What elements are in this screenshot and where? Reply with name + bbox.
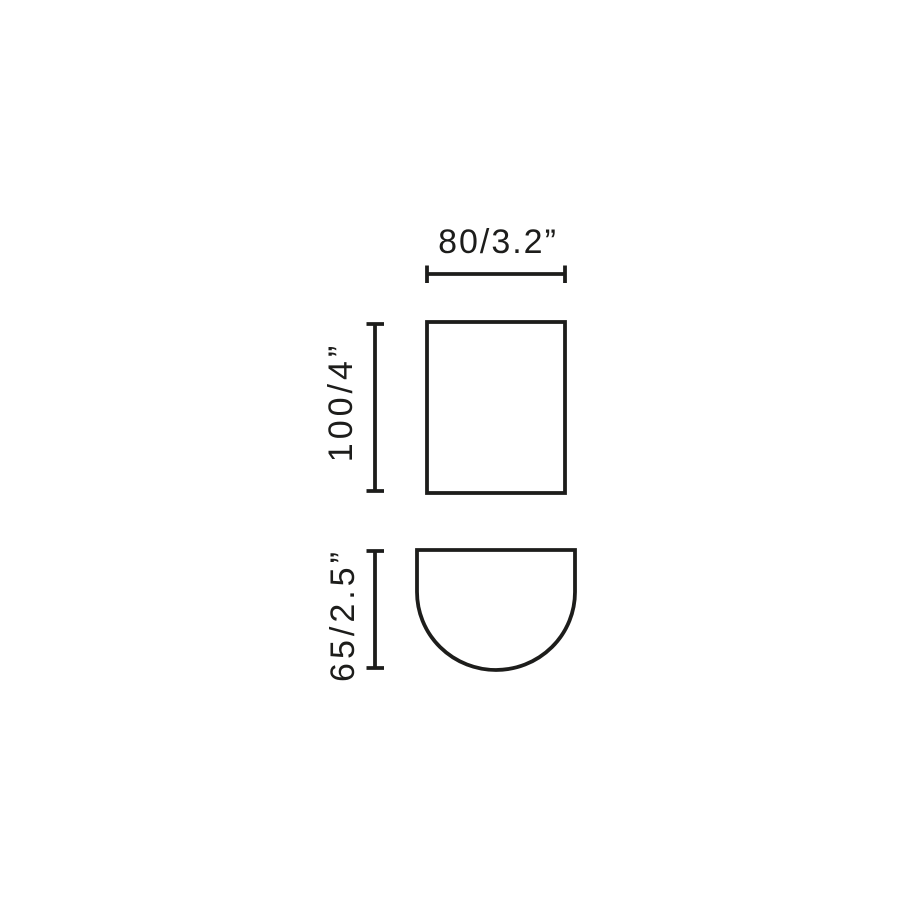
drawing-canvas: 80/3.2” 100/4” 65/2.5” xyxy=(0,0,900,900)
front-view-outline xyxy=(427,322,565,493)
profile-view-outline xyxy=(417,550,575,670)
depth-dimension-line xyxy=(367,551,385,668)
height-dimension-label: 100/4” xyxy=(319,292,363,512)
depth-dimension-label: 65/2.5” xyxy=(321,505,365,725)
dimension-drawing xyxy=(0,0,900,900)
width-dimension-line xyxy=(427,266,565,284)
width-dimension-label: 80/3.2” xyxy=(388,220,608,264)
height-dimension-line xyxy=(367,324,385,491)
